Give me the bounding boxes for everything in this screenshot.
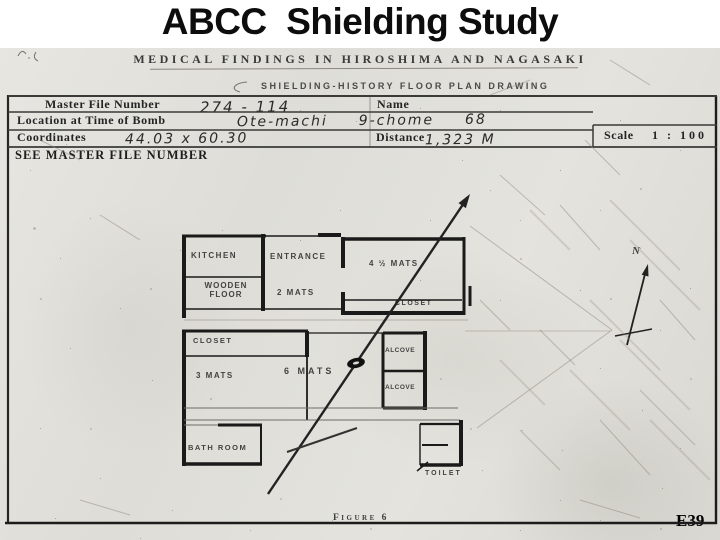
north-arrow (615, 264, 652, 345)
scratch-hatching (500, 200, 710, 480)
slide: ABCC Shielding Study MEDICAL FINDINGS IN… (0, 0, 720, 540)
faint-pencil-lines (184, 226, 612, 428)
scan-linework (0, 0, 720, 540)
pen-doodles (18, 51, 247, 92)
page-border (5, 95, 717, 524)
direction-arrowhead (459, 194, 471, 208)
scratch-marks (40, 60, 695, 518)
subject-position-marker (346, 356, 366, 370)
floor-plan-walls (182, 234, 470, 471)
form-grid-lines (8, 96, 717, 147)
direction-line (268, 197, 468, 494)
